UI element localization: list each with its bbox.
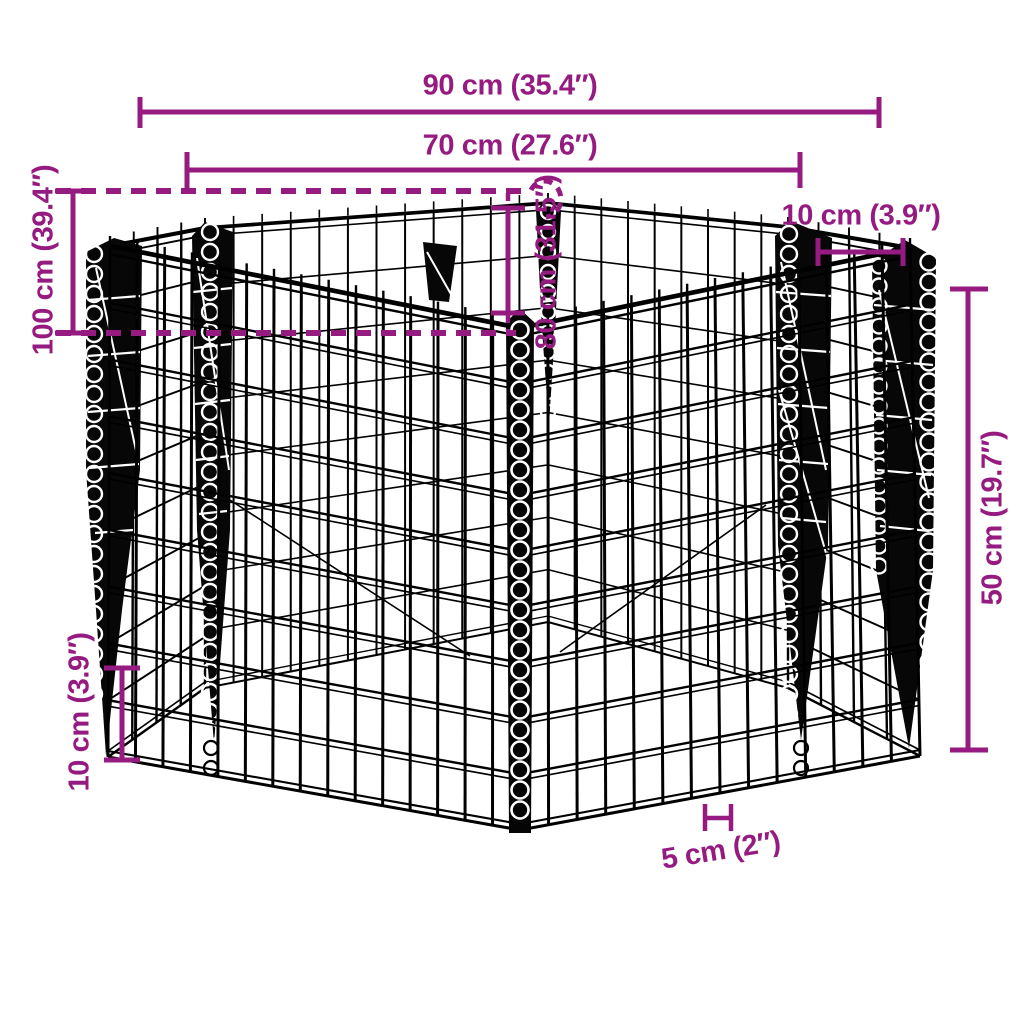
front-corner-spiral bbox=[506, 309, 534, 833]
dim-mesh-cell-line bbox=[705, 804, 731, 831]
dim-label-outer-width: 90 cm (35.4″) bbox=[423, 72, 598, 101]
dim-label-inner-depth: 80 cm (31.5″) bbox=[533, 175, 562, 350]
dim-label-ground-clearance: 10 cm (3.9″) bbox=[66, 632, 95, 791]
dim-label-corner-gap: 10 cm (3.9″) bbox=[781, 202, 940, 231]
dim-label-total-depth: 100 cm (39.4″) bbox=[30, 165, 59, 355]
dashed-back-rim-level-line bbox=[56, 181, 561, 217]
dim-outer-width-line bbox=[140, 97, 879, 128]
gabion-dimension-diagram: 90 cm (35.4″) 70 cm (27.6″) 100 cm (39.4… bbox=[0, 0, 1024, 1024]
dim-label-inner-width: 70 cm (27.6″) bbox=[423, 132, 598, 161]
dim-label-side-height: 50 cm (19.7″) bbox=[979, 431, 1008, 606]
